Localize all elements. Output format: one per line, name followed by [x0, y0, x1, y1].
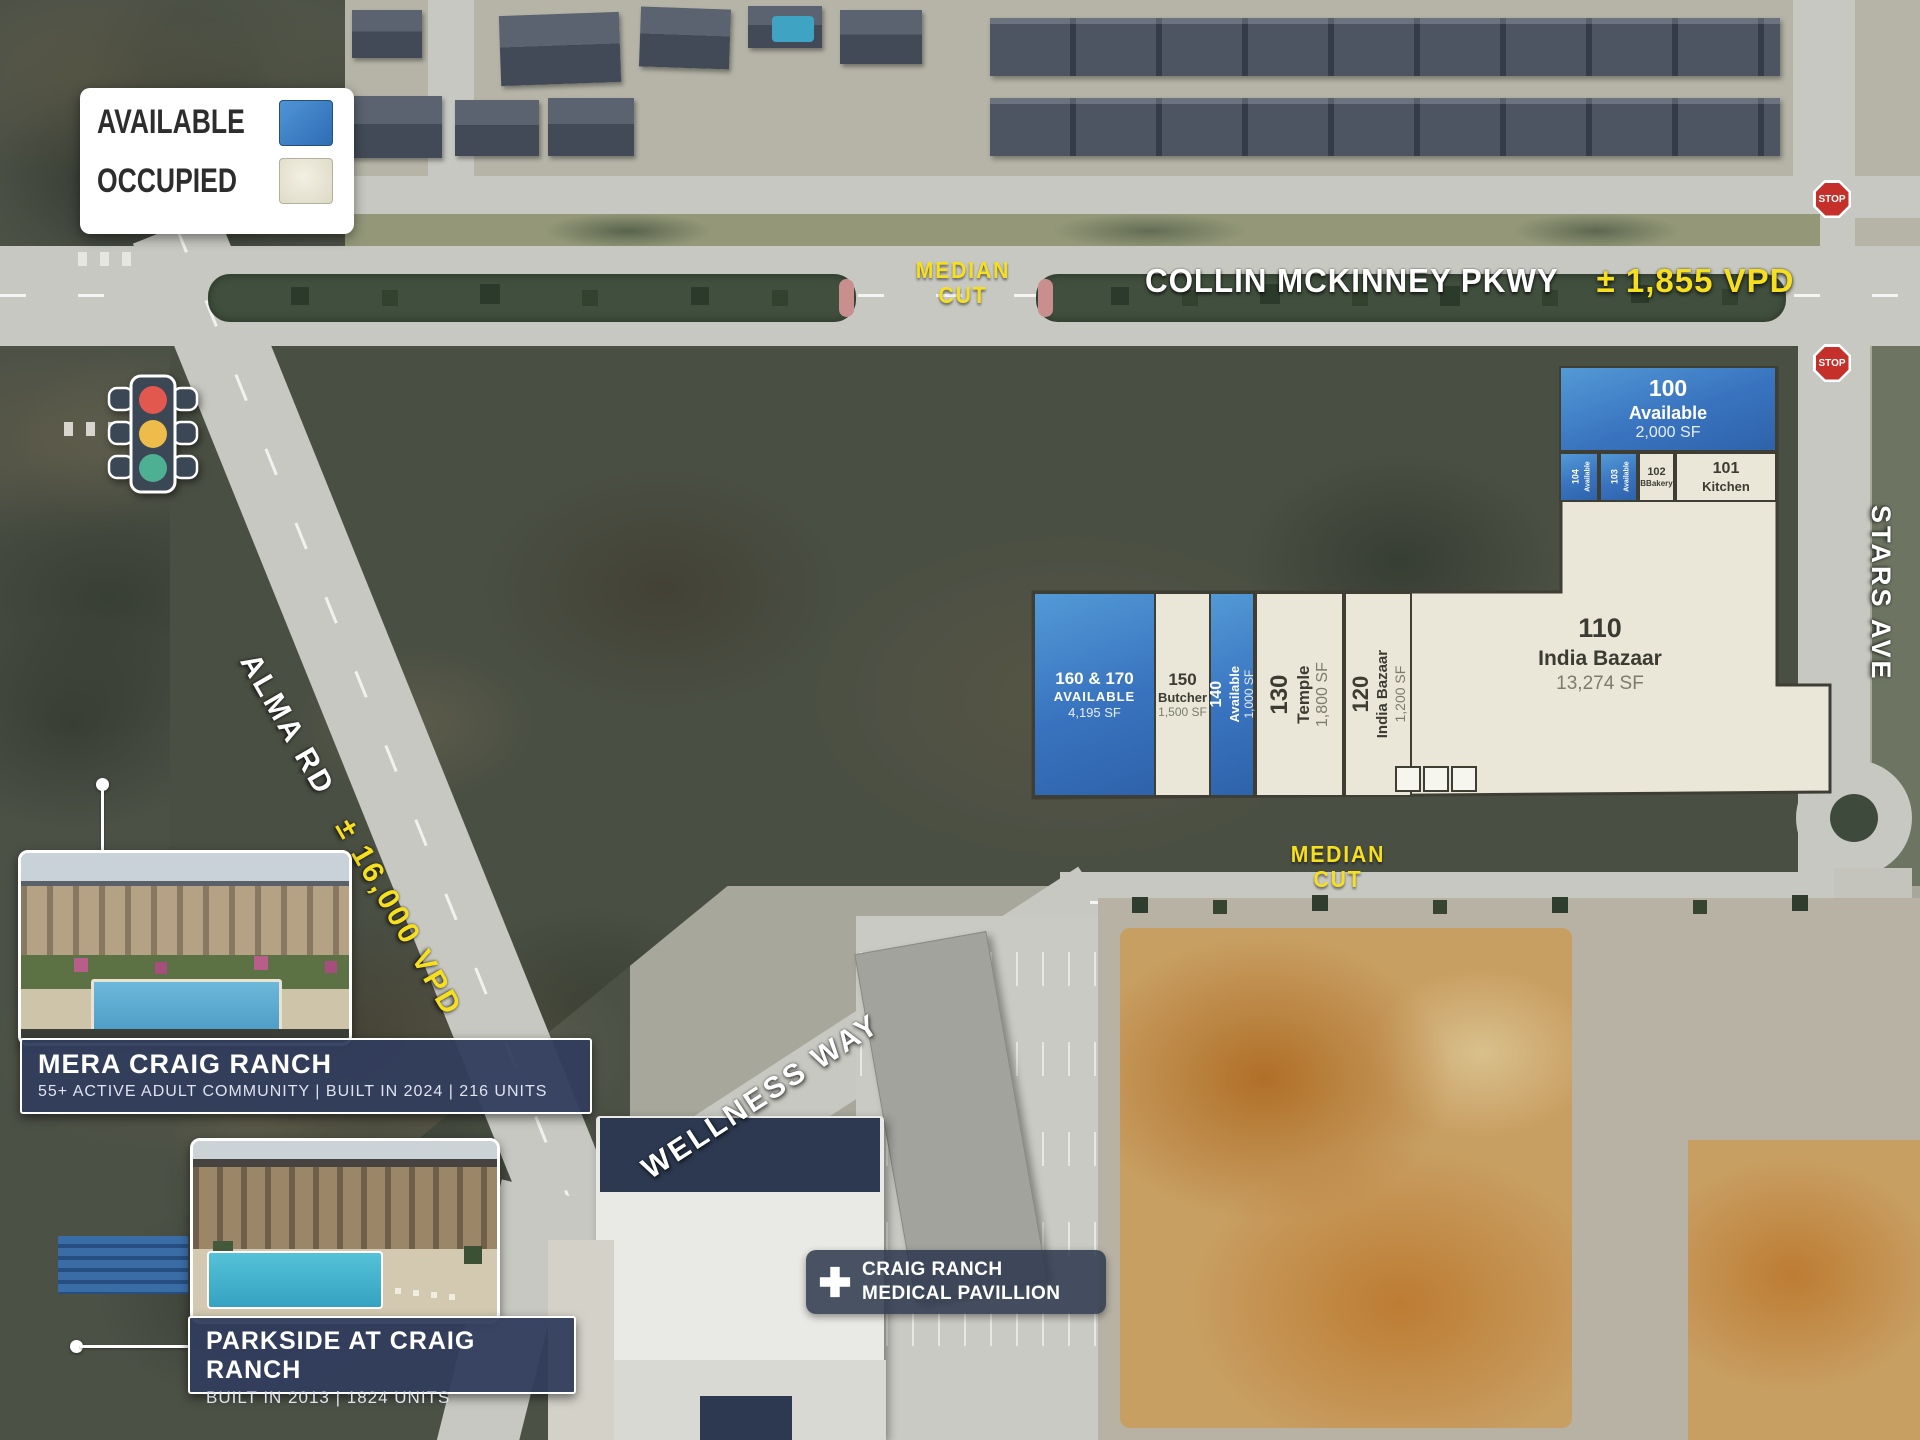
- suite-number: 101: [1702, 460, 1750, 479]
- suite-number: 140: [1208, 681, 1225, 708]
- residential-street: [330, 176, 1920, 218]
- parkside-photo: [190, 1138, 500, 1324]
- suite-102: 102 BBakery: [1638, 452, 1675, 502]
- suite-tenant: Temple: [1294, 662, 1314, 727]
- suite-size: 1,500 SF: [1158, 705, 1207, 719]
- entry-vestibule: [1451, 766, 1477, 792]
- suite-130: 130 Temple 1,800 SF: [1255, 592, 1344, 797]
- suite-tenant: BBakery: [1640, 479, 1672, 488]
- suite-160-170: 160 & 170 AVAILABLE 4,195 SF: [1033, 592, 1156, 797]
- backyard-pool: [772, 16, 814, 42]
- suite-110: 110 India Bazaar 13,274 SF: [1450, 612, 1750, 696]
- parking-stripes: [860, 1312, 1098, 1346]
- legend-occupied-swatch: [279, 158, 333, 204]
- road-name: COLLIN MCKINNEY PKWY: [1145, 262, 1559, 300]
- callout-title: PARKSIDE AT CRAIG RANCH: [206, 1327, 558, 1385]
- suite-tenant: Available: [1584, 462, 1592, 492]
- mera-callout: MERA CRAIG RANCH 55+ ACTIVE ADULT COMMUN…: [20, 1038, 592, 1114]
- median-cut-label-top: MEDIAN CUT: [899, 258, 1028, 309]
- median-tip: [839, 279, 854, 317]
- collin-mckinney-label: COLLIN MCKINNEY PKWY ± 1,855 VPD: [1145, 262, 1794, 300]
- house-roof: [639, 6, 731, 69]
- townhome-row: [990, 18, 1780, 76]
- road-vpd: ± 1,855 VPD: [1597, 262, 1795, 300]
- callout-subtitle: 55+ ACTIVE ADULT COMMUNITY | BUILT IN 20…: [38, 1083, 574, 1101]
- photo-building: [21, 881, 349, 960]
- photo-building: [193, 1159, 497, 1249]
- suite-number: 150: [1158, 670, 1207, 690]
- suite-101: 101 Kitchen: [1675, 452, 1777, 502]
- medical-label-line1: CRAIG RANCH: [862, 1258, 1061, 1282]
- legend-occupied-label: OCCUPIED: [97, 162, 237, 201]
- suite-tenant: India Bazaar: [1450, 646, 1750, 672]
- stop-sign-label: STOP: [1816, 347, 1849, 380]
- suite-number: 160 & 170: [1054, 669, 1135, 689]
- suite-size: 4,195 SF: [1054, 705, 1135, 720]
- townhome-row: [990, 98, 1780, 156]
- suite-tenant: Available: [1624, 462, 1632, 492]
- medical-label-line2: MEDICAL PAVILLION: [862, 1282, 1061, 1306]
- material-stacks: [58, 1236, 188, 1294]
- stop-sign-label: STOP: [1816, 183, 1849, 216]
- mera-photo: [18, 850, 352, 1046]
- parkside-callout: PARKSIDE AT CRAIG RANCH BUILT IN 2013 | …: [188, 1316, 576, 1394]
- house-roof: [548, 98, 634, 156]
- suite-number: 100: [1629, 375, 1707, 402]
- medical-cross-icon: [818, 1265, 852, 1299]
- house-roof: [350, 96, 442, 158]
- house-roof: [455, 100, 539, 156]
- medical-building-dark-roof2: [700, 1396, 792, 1440]
- legend: AVAILABLE OCCUPIED: [80, 88, 354, 234]
- callout-subtitle: BUILT IN 2013 | 1824 UNITS: [206, 1388, 558, 1408]
- suite-number: 103: [1610, 469, 1620, 484]
- suite-number: 102: [1640, 466, 1672, 479]
- median-cut-label-bottom: MEDIAN CUT: [1274, 842, 1403, 893]
- suite-150: 150 Butcher 1,500 SF: [1154, 592, 1211, 797]
- median-island-west: [208, 274, 856, 322]
- suite-size: 13,274 SF: [1450, 672, 1750, 696]
- house-roof: [352, 10, 422, 58]
- medical-pavilion-callout: CRAIG RANCH MEDICAL PAVILLION: [806, 1250, 1106, 1314]
- suite-tenant: AVAILABLE: [1054, 689, 1135, 704]
- suite-104: 104 Available: [1559, 452, 1599, 502]
- house-roof: [499, 12, 621, 86]
- suite-tenant: Butcher: [1158, 690, 1207, 705]
- suite-tenant: Available: [1227, 666, 1242, 723]
- legend-available-swatch: [279, 100, 333, 146]
- construction-dirt: [1120, 928, 1572, 1428]
- grass-verge: [330, 214, 1820, 248]
- stars-ave-label: STARS AVE: [1865, 505, 1896, 682]
- legend-available-label: AVAILABLE: [97, 103, 245, 142]
- traffic-signal-icon: [106, 372, 200, 505]
- house-roof: [840, 10, 922, 64]
- suite-number: 104: [1570, 469, 1580, 484]
- site-aerial-map: 100 Available 2,000 SF 104 Available 103…: [0, 0, 1920, 1440]
- suite-tenant: India Bazaar: [1374, 650, 1392, 738]
- leader-line: [80, 1345, 190, 1348]
- photo-pool: [207, 1251, 383, 1309]
- suite-number: 110: [1450, 612, 1750, 646]
- leader-line: [101, 790, 104, 852]
- construction-dirt-east: [1688, 1140, 1920, 1440]
- suite-size: 1,800 SF: [1314, 662, 1333, 727]
- suite-103: 103 Available: [1599, 452, 1638, 502]
- suite-140: 140 Available 1,000 SF: [1209, 592, 1255, 797]
- callout-title: MERA CRAIG RANCH: [38, 1049, 574, 1080]
- median-tip: [1038, 279, 1053, 317]
- suite-tenant: Kitchen: [1702, 479, 1750, 494]
- suite-number: 120: [1348, 676, 1373, 713]
- suite-tenant: Available: [1629, 403, 1707, 424]
- suite-number: 130: [1266, 674, 1293, 714]
- suite-size: 1,200 SF: [1392, 650, 1409, 738]
- suite-size: 2,000 SF: [1629, 424, 1707, 443]
- entry-vestibule: [1423, 766, 1449, 792]
- entry-vestibule: [1395, 766, 1421, 792]
- suite-100: 100 Available 2,000 SF: [1559, 366, 1777, 452]
